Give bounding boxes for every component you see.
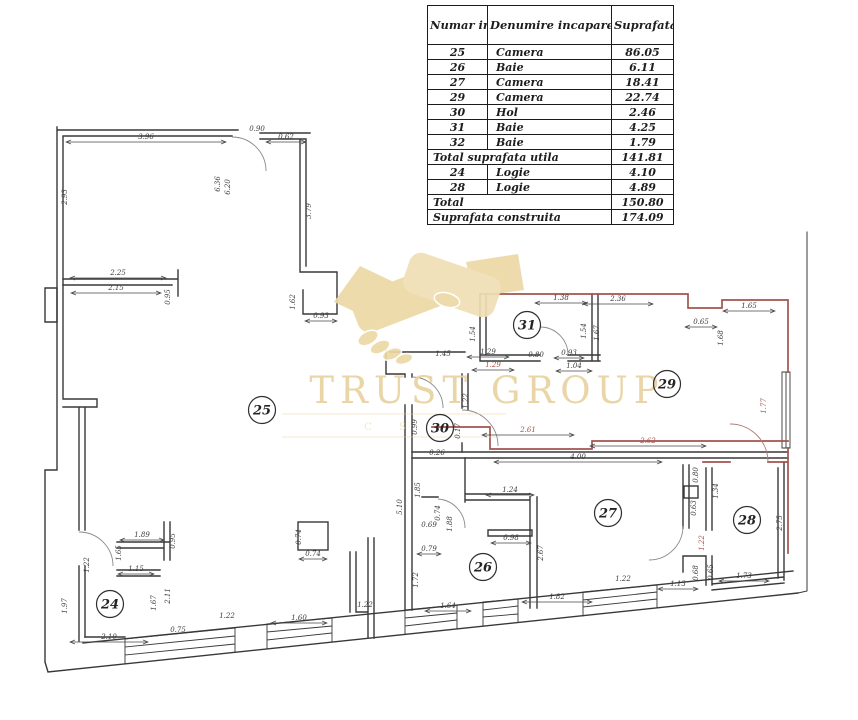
dimension: 1.24 (486, 486, 534, 497)
room-number-cell: 28 (428, 180, 488, 195)
dimension: 1.22 (698, 535, 706, 551)
svg-text:0.75: 0.75 (170, 626, 186, 634)
dimension: 2.61 (482, 426, 574, 437)
svg-text:1.29: 1.29 (480, 348, 496, 356)
svg-text:1.72: 1.72 (412, 572, 420, 588)
dimension: 1.22 (219, 612, 235, 620)
walls-room-27 (412, 452, 788, 608)
svg-text:1.22: 1.22 (615, 575, 631, 583)
svg-text:31: 31 (518, 319, 536, 334)
table-row: Total suprafata utila141.81 (428, 150, 674, 165)
svg-text:2.10: 2.10 (100, 633, 117, 641)
watermark-title: TRUST GROUP (309, 369, 664, 412)
svg-text:1.67: 1.67 (150, 595, 158, 611)
room-number-cell: 31 (428, 120, 488, 135)
dimension: 0.69 (421, 521, 437, 529)
dimension: 1.85 (414, 482, 422, 498)
room-area-cell: 4.25 (612, 120, 674, 135)
dimension: 2.10 (70, 633, 148, 644)
svg-text:24: 24 (100, 598, 119, 613)
svg-text:6.36: 6.36 (214, 176, 222, 192)
room-area-cell: 86.05 (612, 45, 674, 60)
floorplan-page: TRUST GROUP C S 3.960.900.622.936.366.20… (0, 0, 858, 720)
dimension: 1.29 (472, 361, 514, 372)
dimension: 2.93 (61, 189, 69, 206)
svg-text:2.62: 2.62 (639, 437, 656, 445)
svg-text:0.26: 0.26 (429, 449, 445, 457)
svg-text:4.00: 4.00 (569, 453, 586, 461)
room-area-cell: 18.41 (612, 75, 674, 90)
svg-text:3.79: 3.79 (305, 203, 313, 219)
dimension: 1.97 (61, 598, 69, 614)
svg-text:0.17: 0.17 (454, 423, 462, 439)
svg-text:0.80: 0.80 (528, 351, 544, 359)
svg-text:25: 25 (252, 404, 271, 419)
room-label-27: 27 (595, 500, 622, 527)
room-label-25: 25 (249, 397, 276, 424)
room-area-cell: 141.81 (612, 150, 674, 165)
dimension: 0.65 (685, 318, 717, 329)
dimension: 1.89 (120, 531, 164, 542)
svg-text:0.69: 0.69 (421, 521, 437, 529)
door-arc-room-28 (730, 424, 768, 462)
dimension: 0.95 (169, 533, 177, 549)
svg-text:1.64: 1.64 (440, 602, 456, 610)
room-label-31: 31 (514, 312, 541, 339)
col-header-denumire: Denumire incapare (488, 6, 612, 45)
dimension: 0.80 (692, 467, 700, 483)
dimension: 6.20 (224, 179, 232, 195)
svg-text:30: 30 (431, 422, 449, 437)
dimension: 2.36 (583, 295, 653, 306)
svg-text:6.20: 6.20 (224, 179, 232, 195)
dimension: 0.26 (429, 449, 445, 457)
dimension: 1.38 (535, 294, 587, 305)
svg-text:2.36: 2.36 (609, 295, 626, 303)
svg-text:0.74: 0.74 (434, 505, 442, 521)
svg-text:1.77: 1.77 (760, 398, 768, 414)
svg-text:1.15: 1.15 (128, 565, 144, 573)
dimension: 1.34 (712, 483, 720, 499)
dimension: 1.22 (462, 393, 470, 409)
table-header-row: Numar incapere Denumire incapare Suprafa… (428, 6, 674, 45)
svg-text:1.67: 1.67 (593, 325, 601, 341)
dimension: 0.80 (528, 351, 544, 359)
svg-text:0.65: 0.65 (707, 564, 715, 580)
table-row: 27Camera18.41 (428, 75, 674, 90)
svg-text:0.65: 0.65 (693, 318, 709, 326)
table-row: 32Baie1.79 (428, 135, 674, 150)
room-number-cell: 29 (428, 90, 488, 105)
svg-text:1.22: 1.22 (462, 393, 470, 409)
table-row: 24Logie4.10 (428, 165, 674, 180)
dimension: 1.82 (522, 593, 592, 604)
room-area-cell: 1.79 (612, 135, 674, 150)
dimension: 0.74 (299, 550, 327, 561)
dimension: 1.22 (357, 601, 373, 609)
svg-text:0.90: 0.90 (249, 125, 265, 133)
svg-text:1.22: 1.22 (83, 557, 91, 573)
room-number-cell: 24 (428, 165, 488, 180)
table-row: Suprafata construita174.09 (428, 210, 674, 225)
dimension: 0.17 (454, 423, 462, 439)
dimension: 0.63 (690, 500, 698, 516)
svg-text:1.97: 1.97 (61, 598, 69, 614)
svg-text:0.63: 0.63 (690, 500, 698, 516)
window-room-29 (782, 372, 790, 448)
dimension: 5.10 (396, 499, 404, 515)
dimension: 1.54 (580, 323, 588, 339)
svg-text:0.68: 0.68 (692, 565, 700, 581)
room-number-cell: 25 (428, 45, 488, 60)
room-label-26: 26 (470, 554, 497, 581)
dimension: 1.67 (593, 325, 601, 341)
dimension: 1.68 (717, 330, 725, 346)
svg-text:1.45: 1.45 (435, 350, 451, 358)
table-row: 31Baie4.25 (428, 120, 674, 135)
dimension: 2.75 (776, 515, 784, 532)
svg-text:1.54: 1.54 (580, 323, 588, 339)
svg-text:1.38: 1.38 (553, 294, 569, 302)
svg-text:2.15: 2.15 (107, 284, 124, 292)
svg-text:1.88: 1.88 (446, 516, 454, 532)
room-name-cell: Baie (488, 135, 612, 150)
svg-text:1.65: 1.65 (115, 545, 123, 561)
room-name-cell: Hol (488, 105, 612, 120)
dimension: 2.67 (537, 545, 545, 562)
svg-text:1.22: 1.22 (357, 601, 373, 609)
windows-bottom (125, 585, 657, 663)
svg-text:27: 27 (598, 507, 617, 522)
table-row: 28Logie4.89 (428, 180, 674, 195)
dimension: 1.22 (83, 557, 91, 573)
room-name-cell: Logie (488, 165, 612, 180)
room-name-cell: Camera (488, 90, 612, 105)
svg-text:2.67: 2.67 (537, 545, 545, 562)
room-area-cell: 4.89 (612, 180, 674, 195)
svg-text:2.75: 2.75 (776, 515, 784, 532)
dimension: 1.29 (467, 348, 509, 359)
dimension: 2.25 (70, 269, 166, 280)
dimension: 3.96 (66, 133, 226, 144)
room-label-29: 29 (654, 371, 681, 398)
svg-text:1.82: 1.82 (549, 593, 565, 601)
room-number-cell: 30 (428, 105, 488, 120)
dimension: 2.62 (590, 437, 706, 448)
svg-text:5.10: 5.10 (396, 499, 404, 515)
svg-text:29: 29 (657, 378, 676, 393)
dimension: 1.72 (412, 572, 420, 588)
svg-text:1.65: 1.65 (741, 302, 757, 310)
col-header-numar: Numar incapere (428, 6, 488, 45)
dimension: 1.67 (150, 595, 158, 611)
room-area-cell: 6.11 (612, 60, 674, 75)
room-name-cell: Logie (488, 180, 612, 195)
svg-text:1.22: 1.22 (698, 535, 706, 551)
dimension: 0.74 (434, 505, 442, 521)
watermark: TRUST GROUP C S (282, 250, 665, 437)
dimension: 0.95 (164, 289, 172, 305)
svg-text:2.93: 2.93 (61, 189, 69, 206)
svg-text:0.93: 0.93 (561, 349, 577, 357)
walls-room-24 (85, 522, 374, 638)
svg-text:0.79: 0.79 (421, 545, 437, 553)
svg-text:1.54: 1.54 (469, 326, 477, 342)
dimension: 1.65 (723, 302, 775, 313)
dimension: 1.22 (615, 575, 631, 583)
table-row: 26Baie6.11 (428, 60, 674, 75)
svg-text:1.60: 1.60 (291, 614, 307, 622)
svg-text:0.95: 0.95 (164, 289, 172, 305)
room-label-28: 28 (734, 507, 761, 534)
svg-text:1.29: 1.29 (485, 361, 501, 369)
svg-text:1.73: 1.73 (736, 572, 752, 580)
dimension: 3.79 (305, 203, 313, 219)
room-area-cell: 150.80 (612, 195, 674, 210)
shaft-box (684, 486, 698, 498)
svg-text:0.95: 0.95 (169, 533, 177, 549)
room-area-cell: 2.46 (612, 105, 674, 120)
col-header-suprafata: Suprafata utila (mp) (612, 6, 674, 45)
dimension: 2.11 (164, 588, 172, 605)
dimension: 0.79 (417, 545, 441, 556)
svg-text:0.62: 0.62 (278, 133, 294, 141)
dimension: 1.77 (760, 398, 768, 414)
dimension: 0.68 (692, 565, 700, 581)
svg-text:1.62: 1.62 (289, 294, 297, 310)
svg-text:1.89: 1.89 (134, 531, 150, 539)
svg-text:0.93: 0.93 (313, 312, 329, 320)
dimension: 0.75 (170, 626, 186, 634)
room-area-cell: 4.10 (612, 165, 674, 180)
svg-text:2.61: 2.61 (519, 426, 536, 434)
table-row: Total150.80 (428, 195, 674, 210)
svg-text:1.13: 1.13 (670, 580, 686, 588)
svg-text:2.25: 2.25 (109, 269, 126, 277)
room-label-24: 24 (97, 591, 124, 618)
room-number-cell: 27 (428, 75, 488, 90)
svg-text:0.98: 0.98 (503, 534, 519, 542)
table-row: 29Camera22.74 (428, 90, 674, 105)
svg-text:0.80: 0.80 (692, 467, 700, 483)
row-label: Total suprafata utila (428, 150, 612, 165)
dimension: 1.45 (435, 350, 451, 358)
room-number-cell: 26 (428, 60, 488, 75)
svg-text:1.68: 1.68 (717, 330, 725, 346)
room-name-cell: Baie (488, 120, 612, 135)
svg-text:1.22: 1.22 (219, 612, 235, 620)
svg-text:0.74: 0.74 (305, 550, 321, 558)
room-area-cell: 174.09 (612, 210, 674, 225)
watermark-subtitle: C S (364, 422, 418, 433)
dimension: 1.54 (469, 326, 477, 342)
dimension: 1.04 (556, 362, 592, 373)
dimension: 6.36 (214, 176, 222, 192)
room-number-cell: 32 (428, 135, 488, 150)
svg-text:1.34: 1.34 (712, 483, 720, 499)
svg-text:0.74: 0.74 (295, 529, 303, 545)
svg-text:3.96: 3.96 (138, 133, 154, 141)
room-area-cell: 22.74 (612, 90, 674, 105)
table-row: 30Hol2.46 (428, 105, 674, 120)
room-name-cell: Camera (488, 75, 612, 90)
dimension: 0.74 (295, 529, 303, 545)
room-name-cell: Baie (488, 60, 612, 75)
dimension: 1.88 (446, 516, 454, 532)
svg-text:0.99: 0.99 (411, 419, 419, 435)
svg-text:1.24: 1.24 (502, 486, 518, 494)
svg-text:2.11: 2.11 (164, 588, 172, 605)
svg-text:26: 26 (473, 561, 492, 576)
dimension: 0.90 (249, 125, 265, 133)
row-label: Suprafata construita (428, 210, 612, 225)
dimension: 0.99 (411, 419, 419, 435)
boundary-right (798, 232, 807, 593)
walls-top-middle (63, 133, 337, 550)
area-table: Numar incapere Denumire incapare Suprafa… (427, 5, 674, 225)
svg-text:1.04: 1.04 (566, 362, 582, 370)
svg-text:28: 28 (737, 514, 756, 529)
svg-text:1.85: 1.85 (414, 482, 422, 498)
dimension: 1.62 (289, 294, 297, 310)
row-label: Total (428, 195, 612, 210)
table-row: 25Camera86.05 (428, 45, 674, 60)
room-name-cell: Camera (488, 45, 612, 60)
dimension: 1.65 (115, 545, 123, 561)
dimension: 0.65 (707, 564, 715, 580)
